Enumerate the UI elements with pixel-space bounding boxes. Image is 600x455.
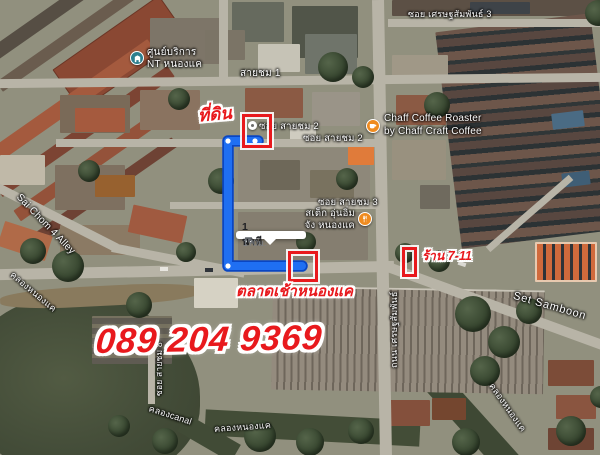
map-tree bbox=[488, 326, 520, 358]
map-vehicle bbox=[205, 268, 213, 272]
map-tree bbox=[108, 415, 130, 437]
land-plot-rectangle bbox=[242, 114, 272, 148]
map-tree bbox=[455, 296, 491, 332]
road-label-soi-sai-chom-2: ซอย สายชม 2 bbox=[303, 131, 363, 146]
map-tree bbox=[336, 168, 358, 190]
map-building bbox=[548, 360, 594, 386]
nt-service-center-label-2: NT หนองแค bbox=[147, 57, 202, 72]
map-building bbox=[194, 278, 238, 308]
map-tree bbox=[556, 416, 586, 446]
map-tree bbox=[20, 238, 46, 264]
map-tree bbox=[78, 160, 100, 182]
road-label-sai-chom-1: สายชม 1 bbox=[240, 66, 281, 81]
map-tree bbox=[318, 52, 348, 82]
nt-service-center-icon[interactable] bbox=[130, 51, 144, 65]
map-building bbox=[312, 92, 360, 126]
map-building bbox=[0, 155, 45, 185]
market-annotation: ตลาดเช้าหนองแค bbox=[236, 284, 353, 301]
phone-number: 089 204 9369 bbox=[94, 318, 324, 362]
map-building bbox=[95, 175, 135, 197]
map-tree bbox=[348, 418, 374, 444]
map-road bbox=[219, 0, 228, 80]
map-tree bbox=[152, 428, 178, 454]
steak-restaurant-label-2: จัง หนองแค bbox=[300, 218, 355, 233]
steak-restaurant-icon[interactable] bbox=[358, 212, 372, 226]
map-tree bbox=[296, 428, 324, 455]
map-tree bbox=[176, 242, 196, 262]
map-building bbox=[75, 108, 125, 132]
road-label-thanon-setthasamphan: ถนน เศรษฐสัมพันธ์ bbox=[387, 291, 401, 368]
map-building bbox=[260, 160, 300, 190]
map-building bbox=[432, 398, 466, 420]
seven-eleven-rectangle bbox=[402, 247, 417, 277]
map-tree bbox=[352, 66, 374, 88]
map-building bbox=[392, 140, 446, 180]
map-tree bbox=[208, 168, 234, 194]
map-building bbox=[390, 400, 430, 426]
road-label-soi-setthasamphan-3: ซอย เศรษฐสัมพันธ์ 3 bbox=[408, 7, 492, 21]
satellite-map[interactable]: ซอย เศรษฐสัมพันธ์ 3 สายชม 1 ซอย สายชม 2 … bbox=[0, 0, 600, 455]
route-info-callout[interactable]: 1 นาที 170ม. bbox=[236, 231, 306, 239]
map-building bbox=[420, 185, 450, 209]
chaff-coffee-label-2: by Chaff Craft Coffee bbox=[384, 126, 482, 137]
callout-pointer bbox=[264, 239, 276, 245]
map-tree bbox=[452, 428, 480, 455]
route-distance: 170ม. bbox=[243, 236, 266, 250]
chaff-coffee-label-1: Chaff Coffee Roaster bbox=[384, 113, 482, 124]
land-annotation: ที่ดิน bbox=[197, 105, 232, 127]
market-rectangle bbox=[288, 251, 318, 282]
map-tree bbox=[126, 292, 152, 318]
seven-eleven-annotation: ร้าน 7-11 bbox=[422, 250, 472, 264]
map-building bbox=[535, 242, 597, 282]
map-tree bbox=[168, 88, 190, 110]
chaff-coffee-icon[interactable] bbox=[366, 119, 380, 133]
map-vehicle bbox=[160, 267, 168, 271]
